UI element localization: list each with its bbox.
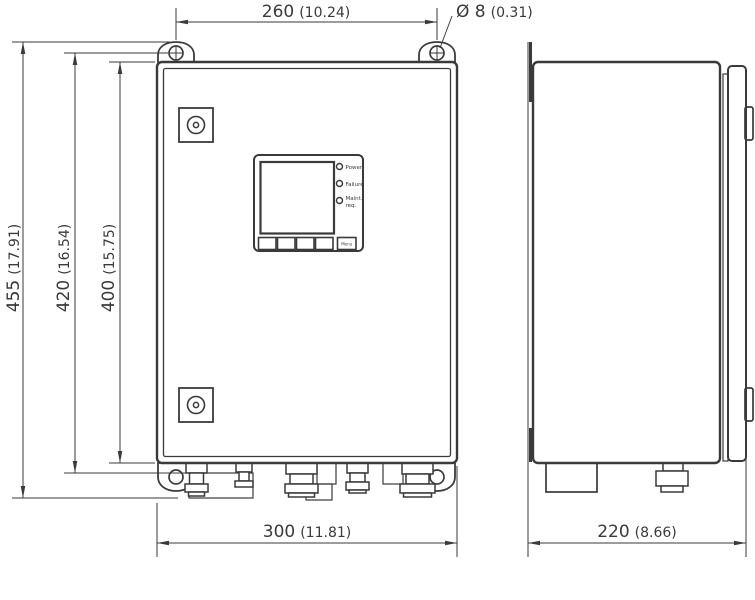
door-side-panel	[728, 66, 746, 461]
dim-label-220: 220(8.66)	[597, 522, 677, 542]
front-view: Power Failure Maint. req. Menu	[157, 42, 457, 500]
dim-mount-hole-spacing: 260(10.24)	[176, 2, 437, 40]
dim-label-hole-diameter: Ø 8(0.31)	[456, 2, 533, 22]
gland-plate-center	[317, 463, 336, 484]
dim-label-300: 300(11.81)	[263, 522, 351, 542]
enclosure-front-body	[157, 62, 457, 463]
failure-led-label: Failure	[346, 182, 365, 188]
menu-button-label: Menu	[341, 241, 352, 246]
cable-gland-4	[346, 463, 369, 493]
cable-gland-side	[656, 463, 688, 492]
dim-label-420: 420(16.54)	[54, 224, 74, 312]
enclosure-dimension-drawing: Power Failure Maint. req. Menu	[0, 0, 755, 600]
cable-gland-3	[285, 463, 318, 497]
dim-hole-diameter: Ø 8(0.31)	[440, 2, 533, 48]
gland-plate-right	[383, 463, 403, 484]
power-led-label: Power	[346, 165, 363, 171]
dim-body-height: 400(15.75)	[99, 62, 155, 463]
enclosure-side-body	[533, 62, 720, 463]
dim-label-400: 400(15.75)	[99, 224, 119, 312]
dim-overall-height: 455(17.91)	[4, 42, 178, 498]
maint-led-label-line1: Maint.	[346, 196, 363, 202]
maint-led-label-line2: req.	[346, 203, 357, 209]
cable-gland-5	[400, 463, 435, 497]
bottom-box-side	[546, 463, 597, 492]
dim-label-260: 260(10.24)	[262, 2, 350, 22]
side-view	[528, 42, 753, 557]
dim-label-455: 455(17.91)	[4, 224, 24, 312]
technical-drawing-page: Power Failure Maint. req. Menu	[0, 0, 755, 600]
cable-gland-2	[235, 463, 253, 487]
